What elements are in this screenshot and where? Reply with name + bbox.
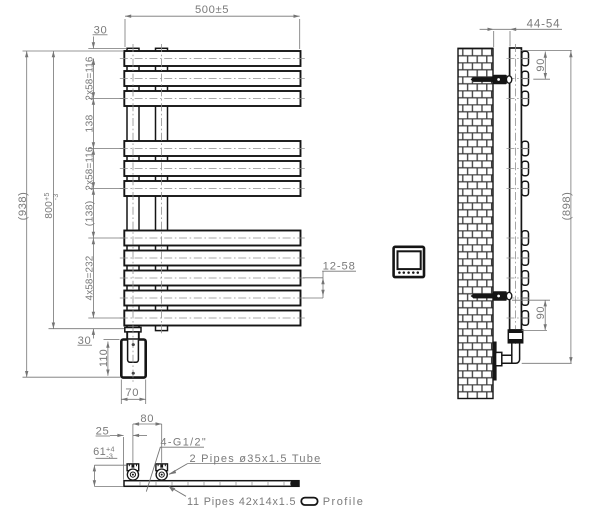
svg-text:(938): (938) xyxy=(17,192,29,221)
svg-text:110: 110 xyxy=(98,349,110,367)
svg-text:70: 70 xyxy=(125,387,139,399)
svg-text:2 Pipes ø35x1.5 Tube: 2 Pipes ø35x1.5 Tube xyxy=(190,453,322,465)
svg-text:11 Pipes 42x14x1.5: 11 Pipes 42x14x1.5 xyxy=(187,496,296,508)
svg-text:4x58=232: 4x58=232 xyxy=(84,256,95,301)
svg-text:2x58=116: 2x58=116 xyxy=(84,146,95,190)
svg-text:800+5-3: 800+5-3 xyxy=(44,192,60,219)
svg-text:4-G1/2": 4-G1/2" xyxy=(161,436,208,448)
svg-text:2x58=116: 2x58=116 xyxy=(84,56,95,100)
svg-text:80: 80 xyxy=(140,413,154,425)
svg-text:90: 90 xyxy=(535,58,547,72)
svg-text:90: 90 xyxy=(535,306,547,320)
svg-text:500±5: 500±5 xyxy=(195,4,229,16)
svg-text:(138): (138) xyxy=(84,200,95,226)
svg-text:(898): (898) xyxy=(561,192,573,221)
svg-text:12-58: 12-58 xyxy=(323,261,356,273)
svg-text:Profile: Profile xyxy=(323,496,365,508)
svg-text:44-54: 44-54 xyxy=(527,18,561,31)
svg-text:138: 138 xyxy=(84,114,95,132)
